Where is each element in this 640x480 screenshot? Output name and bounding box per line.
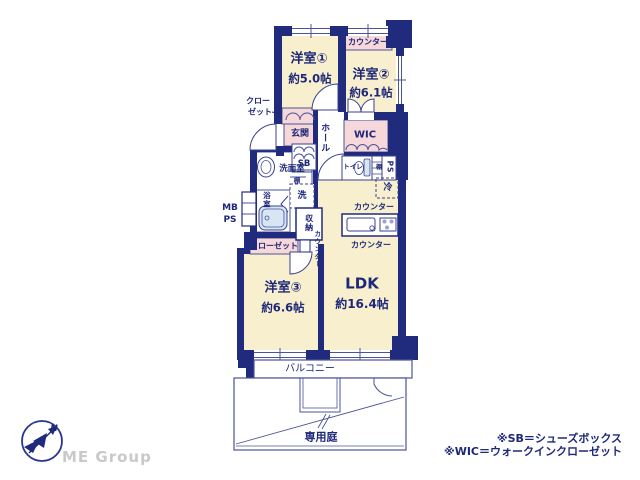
label-toilet: トイレ bbox=[343, 163, 363, 170]
label-bedroom3-name: 洋室③ bbox=[264, 282, 301, 297]
label-entrance: 玄関 bbox=[291, 129, 309, 139]
label-ldk-name: LDK bbox=[345, 275, 379, 292]
label-meter-box-line2: PS bbox=[223, 215, 236, 225]
label-washroom: 洗面室 bbox=[279, 165, 305, 175]
label-meter-box-line1: MB bbox=[222, 203, 238, 213]
label-ldk-size: 約16.4帖 bbox=[335, 298, 389, 312]
floor-plan-page: カウンター 洋室① 約5.0帖 洋室② 約6.1帖 クロー ゼット 玄関 ホール… bbox=[0, 0, 640, 480]
label-hall: ホール bbox=[319, 123, 329, 153]
toilet-tank bbox=[364, 159, 370, 176]
label-counter-kitchen-front: カウンター bbox=[351, 240, 391, 249]
label-bedroom2-name: 洋室② bbox=[352, 69, 389, 84]
label-pipe-space: PS bbox=[385, 161, 394, 174]
label-closet1-line2: ゼット bbox=[248, 107, 272, 116]
front-door-arc bbox=[250, 124, 276, 150]
label-fridge: 冷 bbox=[383, 183, 392, 193]
bathtub-icon bbox=[259, 206, 287, 230]
wic-door-opening bbox=[348, 112, 374, 120]
label-wic: WIC bbox=[354, 129, 376, 141]
kitchen-sink bbox=[347, 218, 375, 231]
label-bathroom: 浴室 bbox=[262, 192, 271, 209]
label-bedroom1-name: 洋室① bbox=[290, 53, 327, 68]
label-balcony: バルコニー bbox=[285, 363, 335, 375]
label-counter-kitchen-back: カウンター bbox=[354, 202, 394, 211]
label-washer: 洗 bbox=[297, 191, 306, 201]
label-private-garden: 専用庭 bbox=[305, 432, 338, 445]
label-bedroom1-size: 約5.0帖 bbox=[288, 72, 331, 85]
label-counter-bedroom2: カウンター bbox=[348, 37, 388, 46]
compass-north-label: N bbox=[50, 424, 58, 434]
washroom-sink-icon bbox=[258, 157, 275, 177]
brand-watermark: ME Group bbox=[62, 448, 152, 466]
meter-box bbox=[242, 192, 256, 226]
legend-note-wic: ※WIC＝ウォークインクローゼット bbox=[444, 443, 622, 459]
counter-end-box bbox=[300, 240, 310, 252]
label-closet3: クローゼット bbox=[250, 241, 298, 250]
label-bedroom2-size: 約6.1帖 bbox=[349, 86, 392, 99]
label-bedroom3-size: 約6.6帖 bbox=[261, 301, 304, 314]
label-closet1-line1: クロー bbox=[246, 96, 270, 105]
label-counter-ldk-side: カウンター bbox=[312, 230, 319, 268]
label-shelf-washroom: 棚 bbox=[294, 177, 301, 184]
label-shelf-toilet: 棚 bbox=[374, 164, 381, 171]
